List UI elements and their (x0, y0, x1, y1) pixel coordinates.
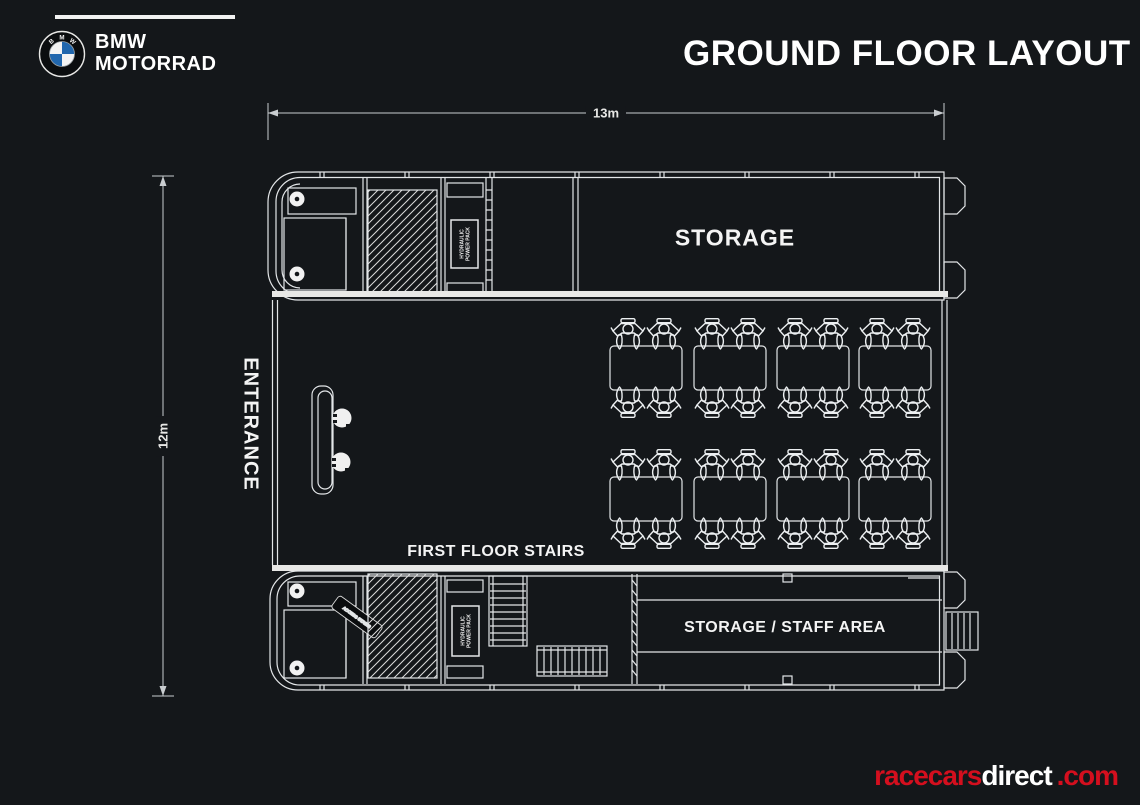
bike-station (610, 319, 682, 418)
bike-station (859, 450, 931, 549)
bike-station (859, 319, 931, 418)
bike-stations (610, 319, 931, 549)
bike-station (610, 450, 682, 549)
storage-label: STORAGE (675, 225, 795, 252)
first-floor-stairs-label: FIRST FLOOR STAIRS (407, 543, 585, 561)
page: ACCESS STAIRS (0, 0, 1140, 805)
top-trailer (268, 172, 965, 300)
brand-name: BMW MOTORRAD (95, 31, 216, 76)
dimension-width-label: 13m (586, 106, 626, 121)
hydraulic-label-top: HYDRAULIC POWER PACK (460, 227, 472, 261)
floor-plan-svg: ACCESS STAIRS (0, 0, 1140, 805)
svg-text:POWER PACK: POWER PACK (467, 614, 473, 648)
racecarsdirect-logo: racecarsdirect.com (874, 760, 1118, 792)
main-floor-walls (273, 300, 948, 565)
bmw-roundel-icon: B M W (38, 30, 86, 78)
reception-desk (312, 386, 352, 494)
page-title: GROUND FLOOR LAYOUT (683, 34, 1131, 74)
bike-station (777, 450, 849, 549)
bike-station (694, 450, 766, 549)
bike-station (777, 319, 849, 418)
logo-part-com: .com (1057, 760, 1118, 791)
svg-text:POWER PACK: POWER PACK (466, 227, 472, 261)
entrance-label: ENTERANCE (239, 357, 262, 490)
logo-part-direct: direct (981, 760, 1051, 791)
bike-station (694, 319, 766, 418)
svg-text:M: M (59, 35, 64, 42)
storage-staff-area-label: STORAGE / STAFF AREA (684, 619, 886, 637)
brand-line1: BMW (95, 31, 216, 53)
brand-rule (55, 15, 235, 19)
dimension-height-label: 12m (156, 416, 171, 456)
logo-part-racecars: racecars (874, 760, 981, 791)
brand-line2: MOTORRAD (95, 53, 216, 75)
hydraulic-label-bottom: HYDRAULIC POWER PACK (461, 614, 473, 648)
